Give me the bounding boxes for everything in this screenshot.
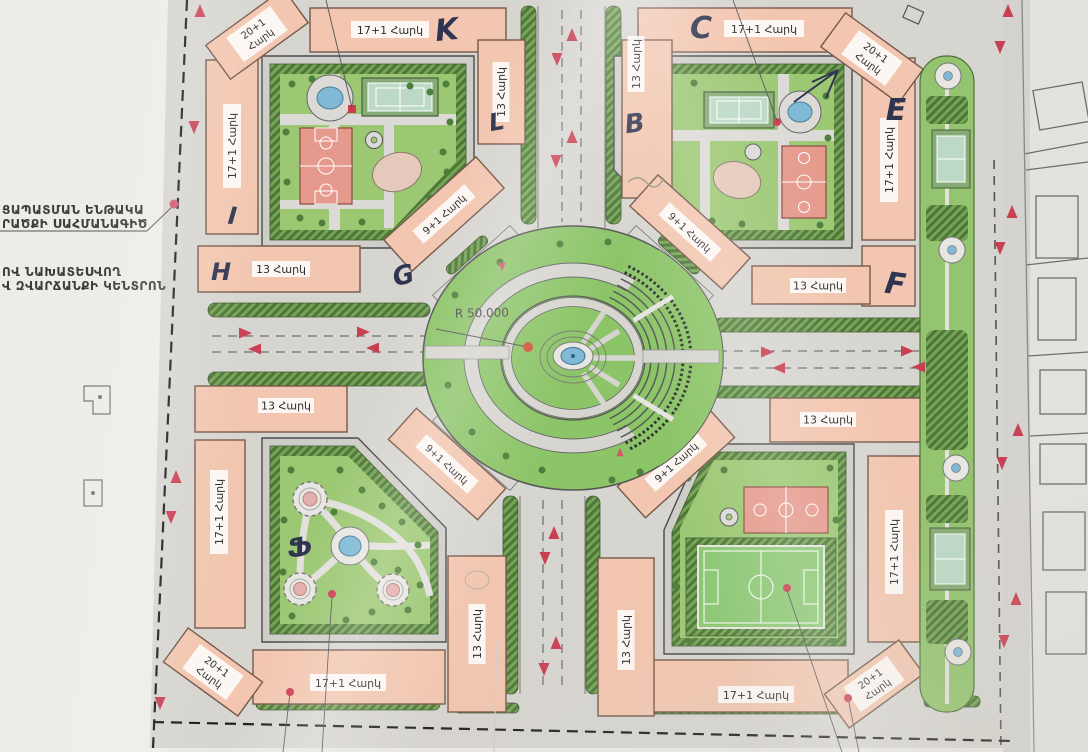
radius-point [523, 342, 533, 352]
fountain-center [726, 514, 732, 520]
note-center-line2: Վ ԶՎԱՐՃԱՆՔԻ ԿԵՆՏՐՈՆ [2, 279, 166, 293]
note-boundary-line2: ՐԱԾՔԻ ՍԱՀՄԱՆԱԳԻԾ [2, 217, 148, 231]
floors-label-vertical: 17+1 Հարկ [210, 470, 228, 554]
tennis-court [930, 528, 970, 590]
right-promenade [920, 56, 974, 712]
floors-label-vertical: 17+1 Հարկ [885, 510, 903, 594]
svg-text:13 Հարկ: 13 Հարկ [630, 39, 643, 89]
basketball-court [744, 487, 828, 533]
pool-center [571, 354, 575, 358]
floors-label: 17+1 Հարկ [731, 23, 797, 36]
floors-label-vertical: 13 Հարկ [618, 610, 635, 670]
boundary-ref-dot [170, 200, 179, 209]
center-path-east [643, 350, 719, 363]
fountain-center [371, 137, 377, 143]
floors-label: 17+1 Հարկ [357, 24, 423, 37]
adjacent-district-area [1030, 0, 1088, 752]
note-boundary-line1: ՑԱՊԱՏՄԱՆ ԵՆԹԱԿԱ [2, 203, 144, 217]
svg-text:17+1 Հարկ: 17+1 Հարկ [888, 519, 901, 585]
central-circle: R 50.000 [423, 226, 723, 490]
site-plan-drawing: 20+1 Հարկ 9+1 Հարկ 17+1 Հարկ 17+1 Հարկ 1… [0, 0, 1088, 752]
floors-label: 13 Հարկ [261, 400, 311, 413]
tennis-court [362, 78, 438, 116]
red-marker-dot [773, 118, 781, 126]
floors-label: 17+1 Հարկ [723, 689, 789, 702]
floors-label: 13 Հարկ [803, 414, 853, 427]
left-margin [0, 0, 168, 752]
radius-label: R 50.000 [455, 306, 509, 321]
floors-label-vertical: 13 Հարկ [469, 604, 486, 664]
football-field [686, 538, 836, 636]
red-marker-dot [844, 694, 852, 702]
floors-label-vertical: 13 Հարկ [628, 36, 645, 92]
svg-text:17+1 Հարկ: 17+1 Հարկ [883, 127, 896, 193]
tennis-court [704, 92, 774, 128]
letter-C: C [690, 11, 712, 46]
svg-text:17+1 Հարկ: 17+1 Հարկ [213, 479, 226, 545]
center-path-west [425, 346, 509, 359]
red-marker-dot [286, 688, 294, 696]
floors-label: 13 Հարկ [793, 280, 843, 293]
photographed-master-plan: 20+1 Հարկ 9+1 Հարկ 17+1 Հարկ 17+1 Հարկ 1… [0, 0, 1088, 752]
letter-park-mark: Ֆ [285, 531, 315, 565]
basketball-court [300, 128, 352, 204]
letter-B: B [623, 108, 647, 140]
svg-text:13 Հարկ: 13 Հարկ [471, 609, 484, 659]
letter-E: E [886, 93, 907, 128]
pool [339, 536, 361, 556]
svg-text:17+1 Հարկ: 17+1 Հարկ [226, 113, 239, 179]
floors-label-vertical: 17+1 Հարկ [223, 104, 241, 188]
dot [92, 492, 95, 495]
letter-H: H [211, 258, 231, 286]
svg-text:13 Հարկ: 13 Հարկ [620, 615, 633, 665]
dot [99, 396, 102, 399]
floors-label: 13 Հարկ [256, 263, 306, 276]
fountain [745, 144, 761, 160]
basketball-court [782, 146, 826, 218]
pool [788, 102, 812, 122]
note-center-line1: ՈՎ ՆԱԽԱՏԵՍՎՈՂ [2, 265, 121, 279]
tennis-court [932, 130, 970, 188]
floors-label: 17+1 Հարկ [315, 677, 381, 690]
pool [317, 87, 343, 109]
floors-label-vertical: 17+1 Հարկ [880, 118, 898, 202]
